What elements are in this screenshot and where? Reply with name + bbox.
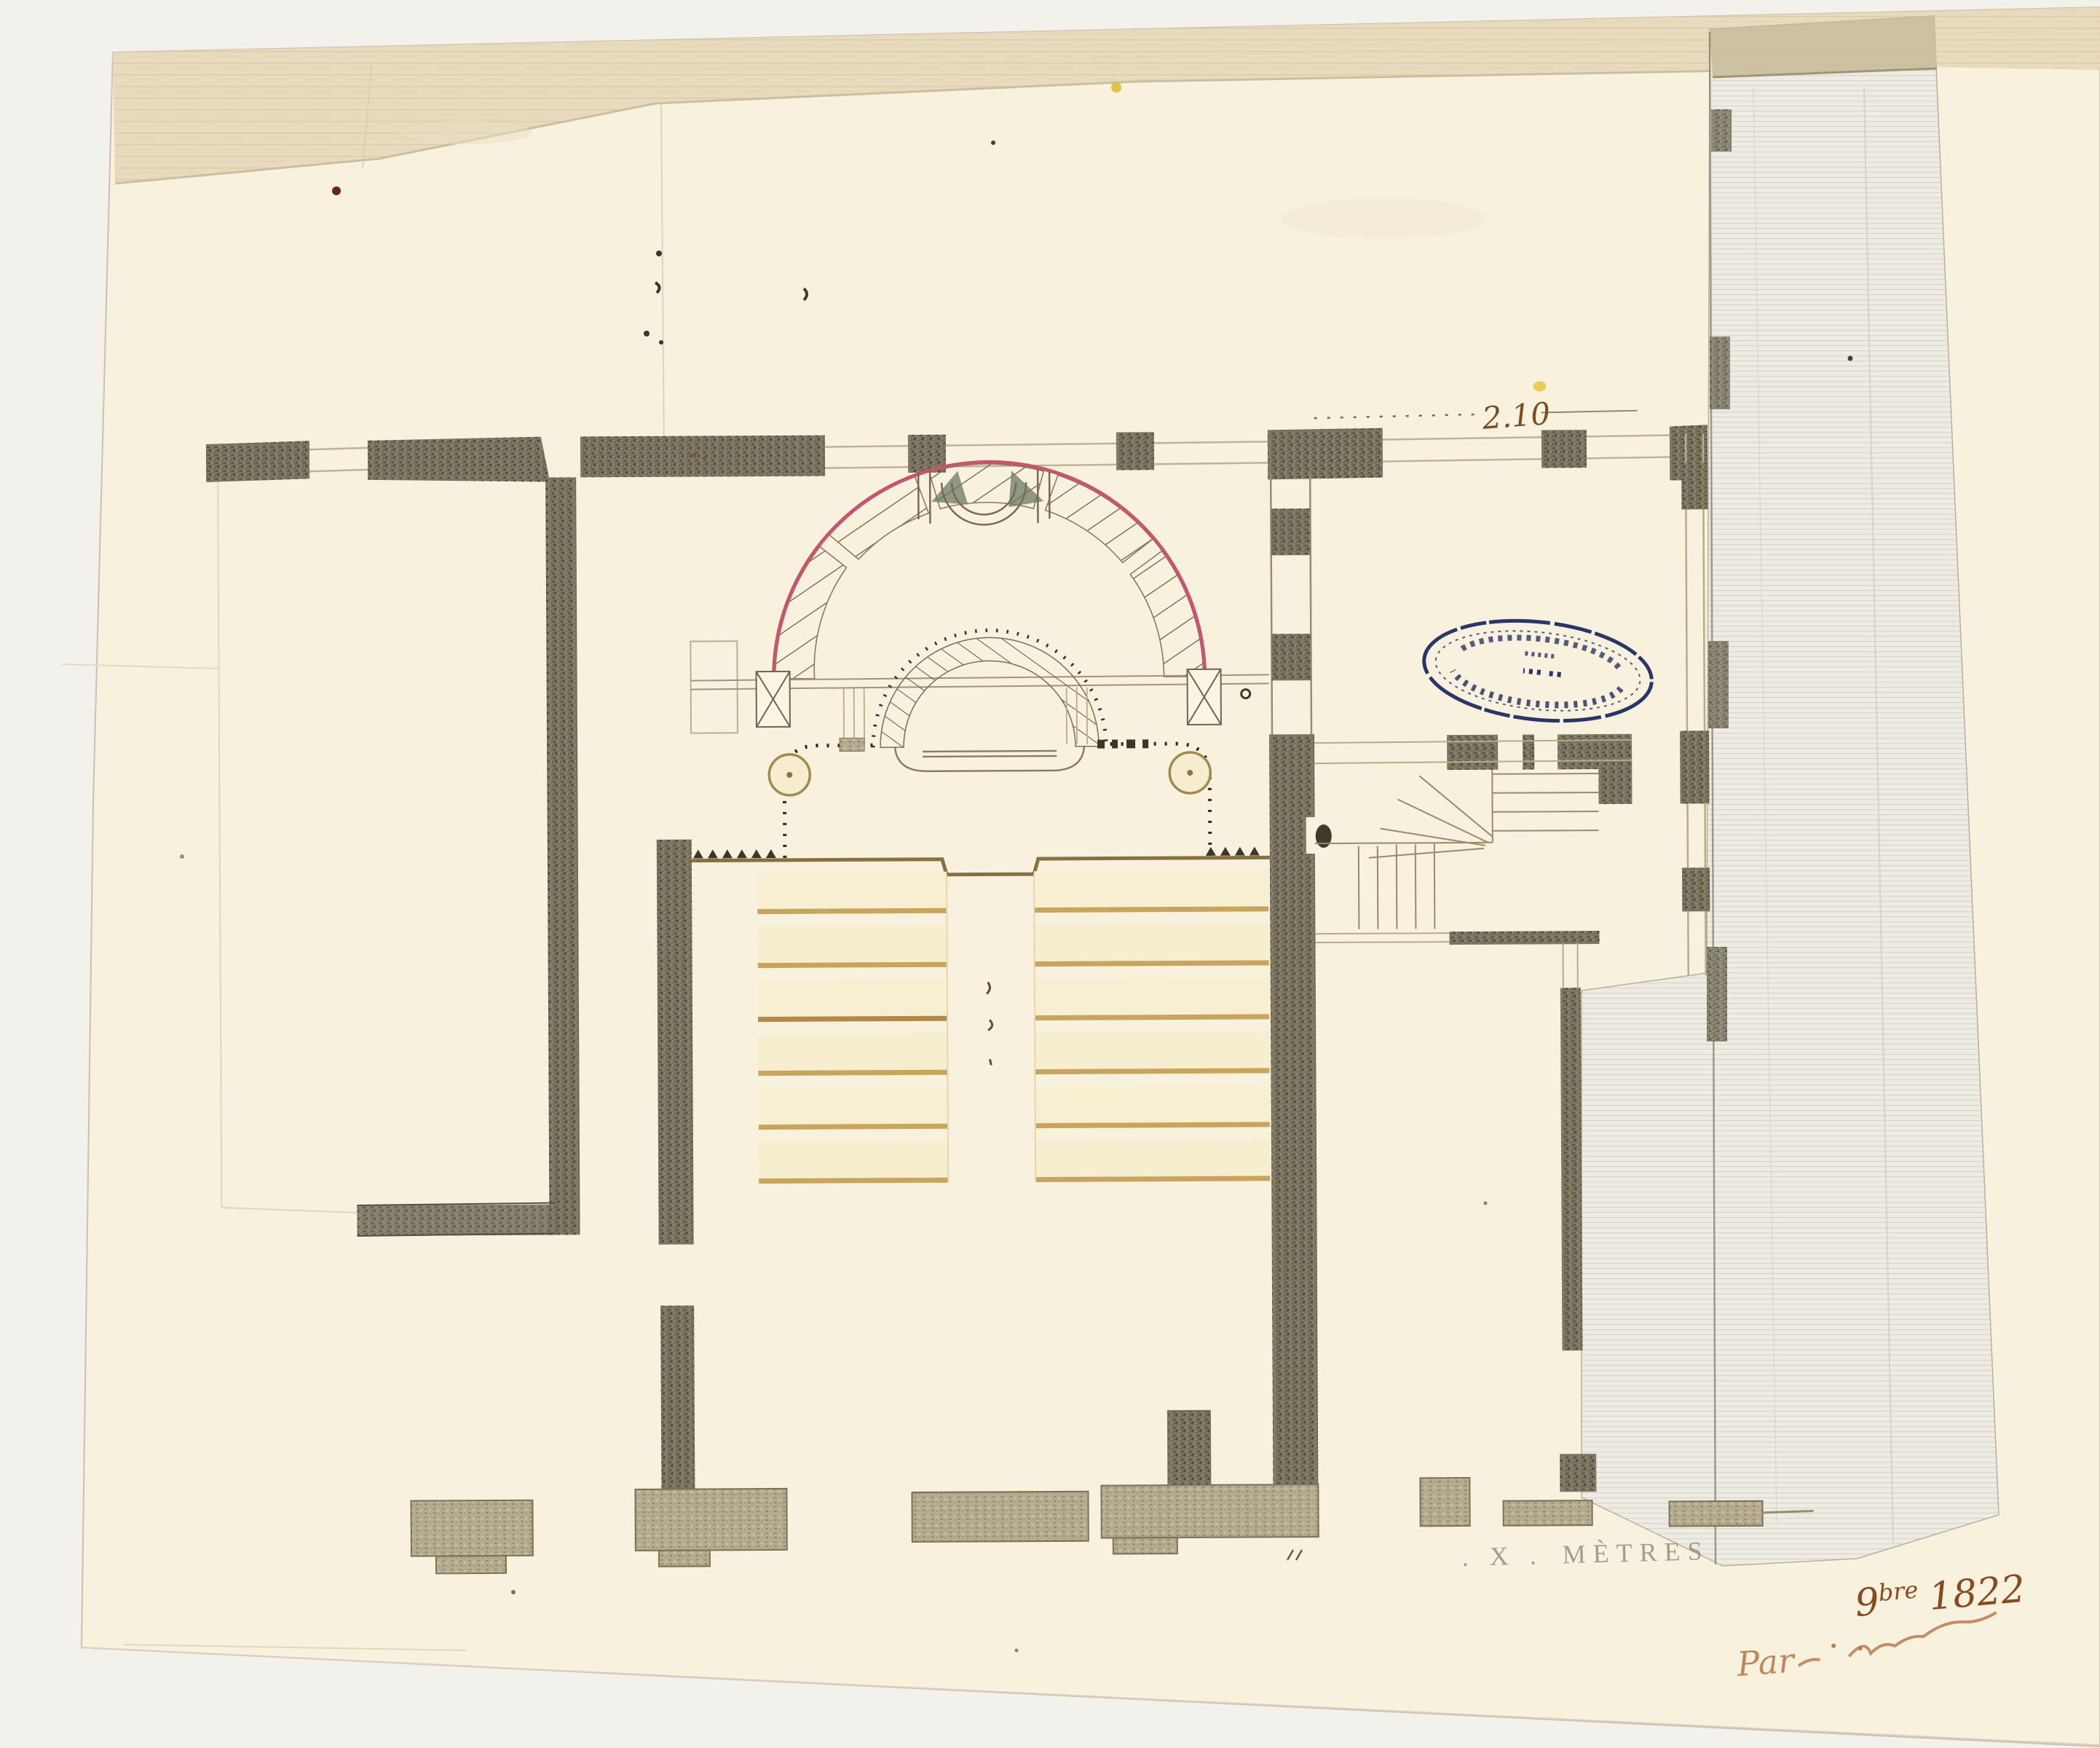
dimension-text: 2.10 (1480, 395, 1552, 436)
photographed-plan: 2.10 . X .MÈTRES 9bre1822 Par (0, 0, 2100, 1748)
svg-text:Par: Par (1735, 1640, 1798, 1684)
closet-basin (1316, 824, 1332, 848)
